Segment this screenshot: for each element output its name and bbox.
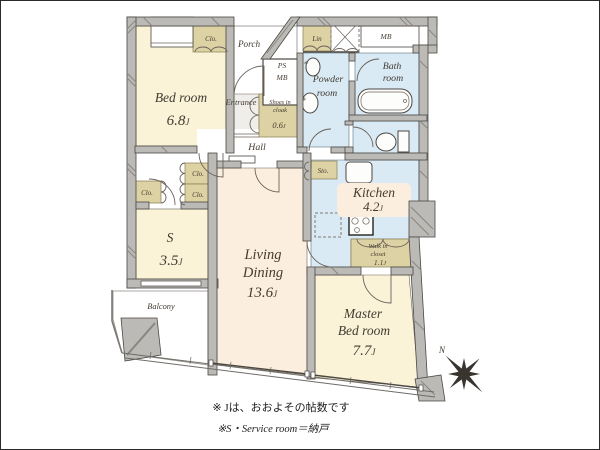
wall-bedroom-right (226, 26, 234, 153)
note-line-1: ※ Jは、おおよその帖数です (212, 401, 349, 414)
label-shoes-2: cloak (273, 107, 287, 114)
label-living-2: Dining (242, 265, 283, 281)
label-living-1: Living (243, 247, 281, 263)
label-closet-bedroom: Clo. (205, 35, 217, 43)
label-linen: Lin (311, 35, 322, 43)
label-porch: Porch (237, 39, 261, 49)
wall-bath-left-b (349, 81, 355, 117)
label-balcony: Balcony (147, 302, 175, 311)
label-service: S (167, 230, 174, 245)
label-storage: Sto. (318, 167, 329, 175)
label-closet-right-2: Clo. (192, 191, 204, 199)
wall-living-left (208, 153, 217, 375)
wall-wc-left-b (345, 147, 353, 153)
wall-master-top-b (391, 267, 413, 275)
bay-window-alcove (151, 26, 193, 47)
notes: ※ Jは、おおよその帖数です ※S・Service room＝納戸 (212, 401, 349, 435)
label-mb: MB (276, 73, 288, 82)
note-line-2: ※S・Service room＝納戸 (217, 423, 330, 435)
floor-plan-svg: Bed room 6.8J Porch Entrance Hall PS MB … (1, 1, 600, 450)
kitchen-sink (346, 162, 372, 183)
wall-right-mid (419, 45, 428, 207)
label-kitchen: Kitchen (352, 185, 395, 200)
compass-star (446, 356, 483, 393)
label-closet-right-1: Clo. (192, 170, 204, 178)
label-master-2: Bed room (338, 323, 391, 338)
label-master-1: Master (343, 306, 383, 321)
wall-wc-bottom (345, 153, 427, 160)
label-closet-left: Clo. (141, 189, 153, 197)
label-powder-2: room (317, 88, 337, 99)
wall-right-upper (428, 17, 437, 47)
stove (349, 215, 373, 235)
compass: N (438, 345, 482, 392)
wall-service-top-a (136, 202, 149, 209)
wall-powder-bottom-a (297, 147, 307, 153)
label-powder-1: Powder (312, 74, 344, 85)
service-window (141, 281, 201, 286)
wall-bath-left-a (349, 53, 355, 61)
label-hall: Hall (247, 142, 266, 153)
wall-service-top-b (181, 202, 208, 209)
wall-bath-wc (349, 115, 427, 121)
wall-bedroom-bottom (135, 146, 197, 153)
label-bedroom: Bed room (155, 90, 208, 105)
floorplan-canvas: Bed room 6.8J Porch Entrance Hall PS MB … (0, 0, 600, 450)
label-bath-1: Bath (383, 61, 402, 72)
bedroom-doorway (197, 146, 226, 153)
label-walkin-1: Walk in (368, 243, 387, 250)
label-shoes-1: Shoes in (269, 99, 290, 106)
label-meter-box: MB (380, 32, 392, 41)
label-bath-2: room (383, 73, 403, 84)
basin-2 (302, 93, 318, 113)
wall-hall-living-a (217, 161, 241, 168)
toilet-tank (398, 131, 409, 152)
label-entrance: Entrance (225, 98, 257, 107)
wall-master-left (307, 267, 315, 379)
wall-wc-left-a (345, 121, 353, 125)
label-ps: PS (277, 61, 287, 70)
label-walkin-2: closet (371, 251, 386, 258)
label-north: N (438, 345, 446, 355)
toilet-bowl (376, 133, 396, 151)
wall-powder-left (297, 53, 303, 147)
